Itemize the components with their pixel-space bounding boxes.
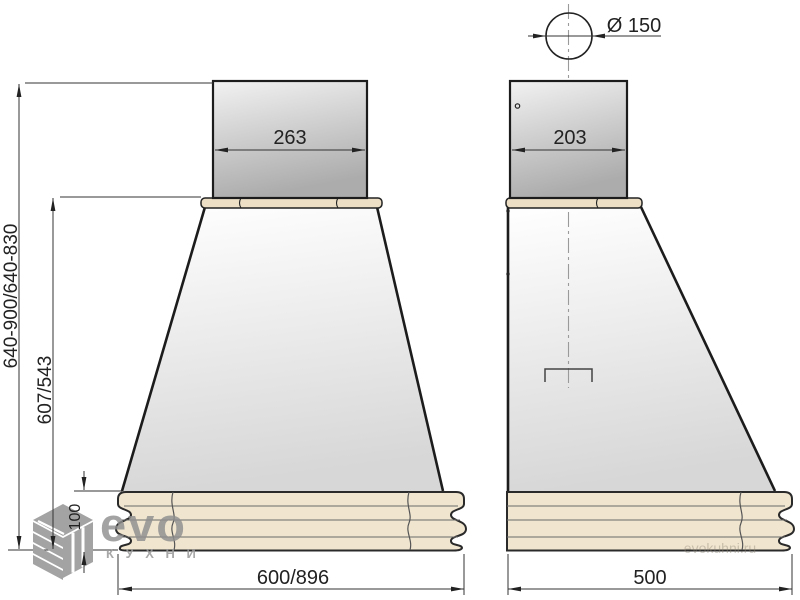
side-canopy [508,207,775,491]
duct-outlet: Ø 150 [528,13,661,59]
logo-kuhni-text: К У Х Н И [106,546,200,561]
dim-overall-width: 600/896 [257,567,329,589]
hinge-dot-icon [506,272,509,275]
evo-logo: evo К У Х Н И [100,498,200,561]
dim-cornice-height: 100 [67,504,84,531]
logo-evo-text: evo [100,498,187,551]
front-mounting-strip [201,198,382,208]
side-view [506,4,794,551]
hinge-dot-icon [506,209,509,212]
site-watermark-text: evokuhni.ru [684,540,756,556]
side-mounting-strip [506,198,642,208]
dim-body-height: 607/543 [35,356,56,425]
dim-flue-width-front: 263 [273,127,306,149]
drawing-canvas: Ø 150 640-900/640-830 607/543 [0,0,800,600]
dim-duct-diameter: Ø 150 [607,15,661,37]
front-canopy [122,207,443,491]
hood-technical-drawing: Ø 150 640-900/640-830 607/543 [0,0,800,600]
dim-flue-depth-side: 203 [553,127,586,149]
front-view [116,81,466,551]
dim-overall-height: 640-900/640-830 [1,224,22,369]
dim-overall-depth: 500 [633,567,666,589]
